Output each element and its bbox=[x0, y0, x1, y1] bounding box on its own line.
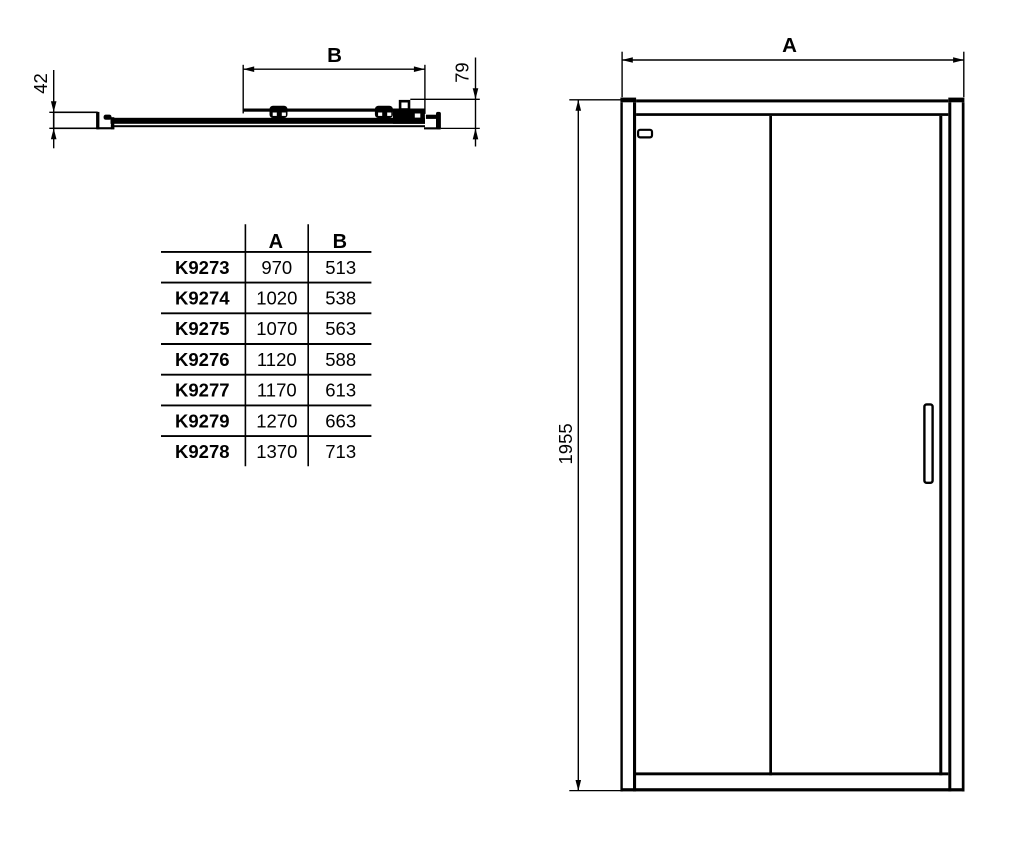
svg-text:1955: 1955 bbox=[555, 423, 576, 464]
svg-text:K9278: K9278 bbox=[175, 441, 230, 462]
svg-text:K9274: K9274 bbox=[175, 288, 230, 309]
svg-text:K9279: K9279 bbox=[175, 410, 230, 431]
svg-text:K9273: K9273 bbox=[175, 257, 230, 278]
svg-text:613: 613 bbox=[325, 380, 356, 401]
svg-text:1270: 1270 bbox=[256, 410, 297, 431]
svg-text:1070: 1070 bbox=[256, 318, 297, 339]
svg-text:713: 713 bbox=[325, 441, 356, 462]
svg-text:K9277: K9277 bbox=[175, 380, 230, 401]
svg-text:1020: 1020 bbox=[256, 288, 297, 309]
svg-text:663: 663 bbox=[325, 410, 356, 431]
svg-text:K9275: K9275 bbox=[175, 318, 230, 339]
svg-text:563: 563 bbox=[325, 318, 356, 339]
svg-text:1120: 1120 bbox=[257, 349, 297, 370]
svg-text:B: B bbox=[333, 231, 347, 253]
svg-text:1370: 1370 bbox=[256, 441, 297, 462]
svg-text:79: 79 bbox=[451, 62, 472, 83]
svg-text:A: A bbox=[269, 231, 283, 253]
svg-text:970: 970 bbox=[261, 257, 292, 278]
svg-text:513: 513 bbox=[325, 257, 356, 278]
svg-text:42: 42 bbox=[30, 73, 51, 94]
svg-text:K9276: K9276 bbox=[175, 349, 230, 370]
svg-text:538: 538 bbox=[325, 288, 356, 309]
svg-text:A: A bbox=[782, 34, 797, 57]
svg-text:588: 588 bbox=[325, 349, 356, 370]
svg-text:1170: 1170 bbox=[257, 380, 297, 401]
svg-text:B: B bbox=[327, 44, 342, 67]
